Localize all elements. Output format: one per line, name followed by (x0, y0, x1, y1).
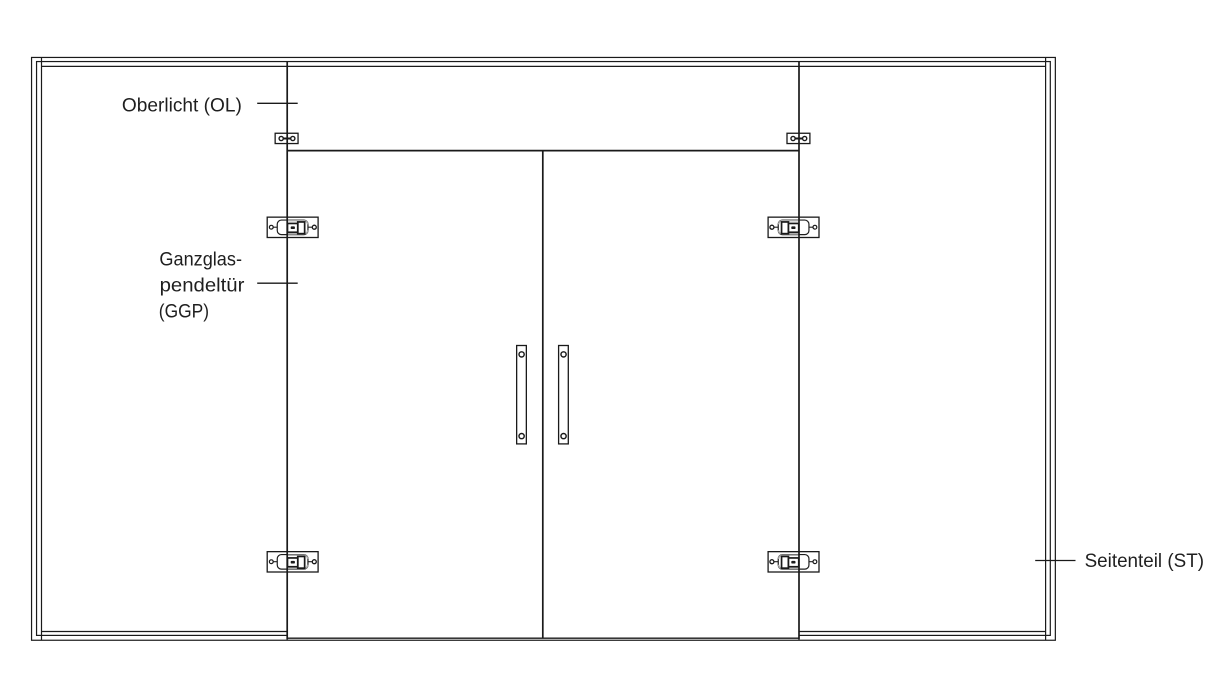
svg-text:Oberlicht (OL): Oberlicht (OL) (122, 95, 242, 116)
svg-text:pendeltür: pendeltür (160, 276, 245, 297)
svg-text:(GGP): (GGP) (159, 302, 209, 323)
svg-text:Seitenteil (ST): Seitenteil (ST) (1085, 551, 1204, 572)
svg-text:Ganzglas-: Ganzglas- (159, 250, 242, 271)
